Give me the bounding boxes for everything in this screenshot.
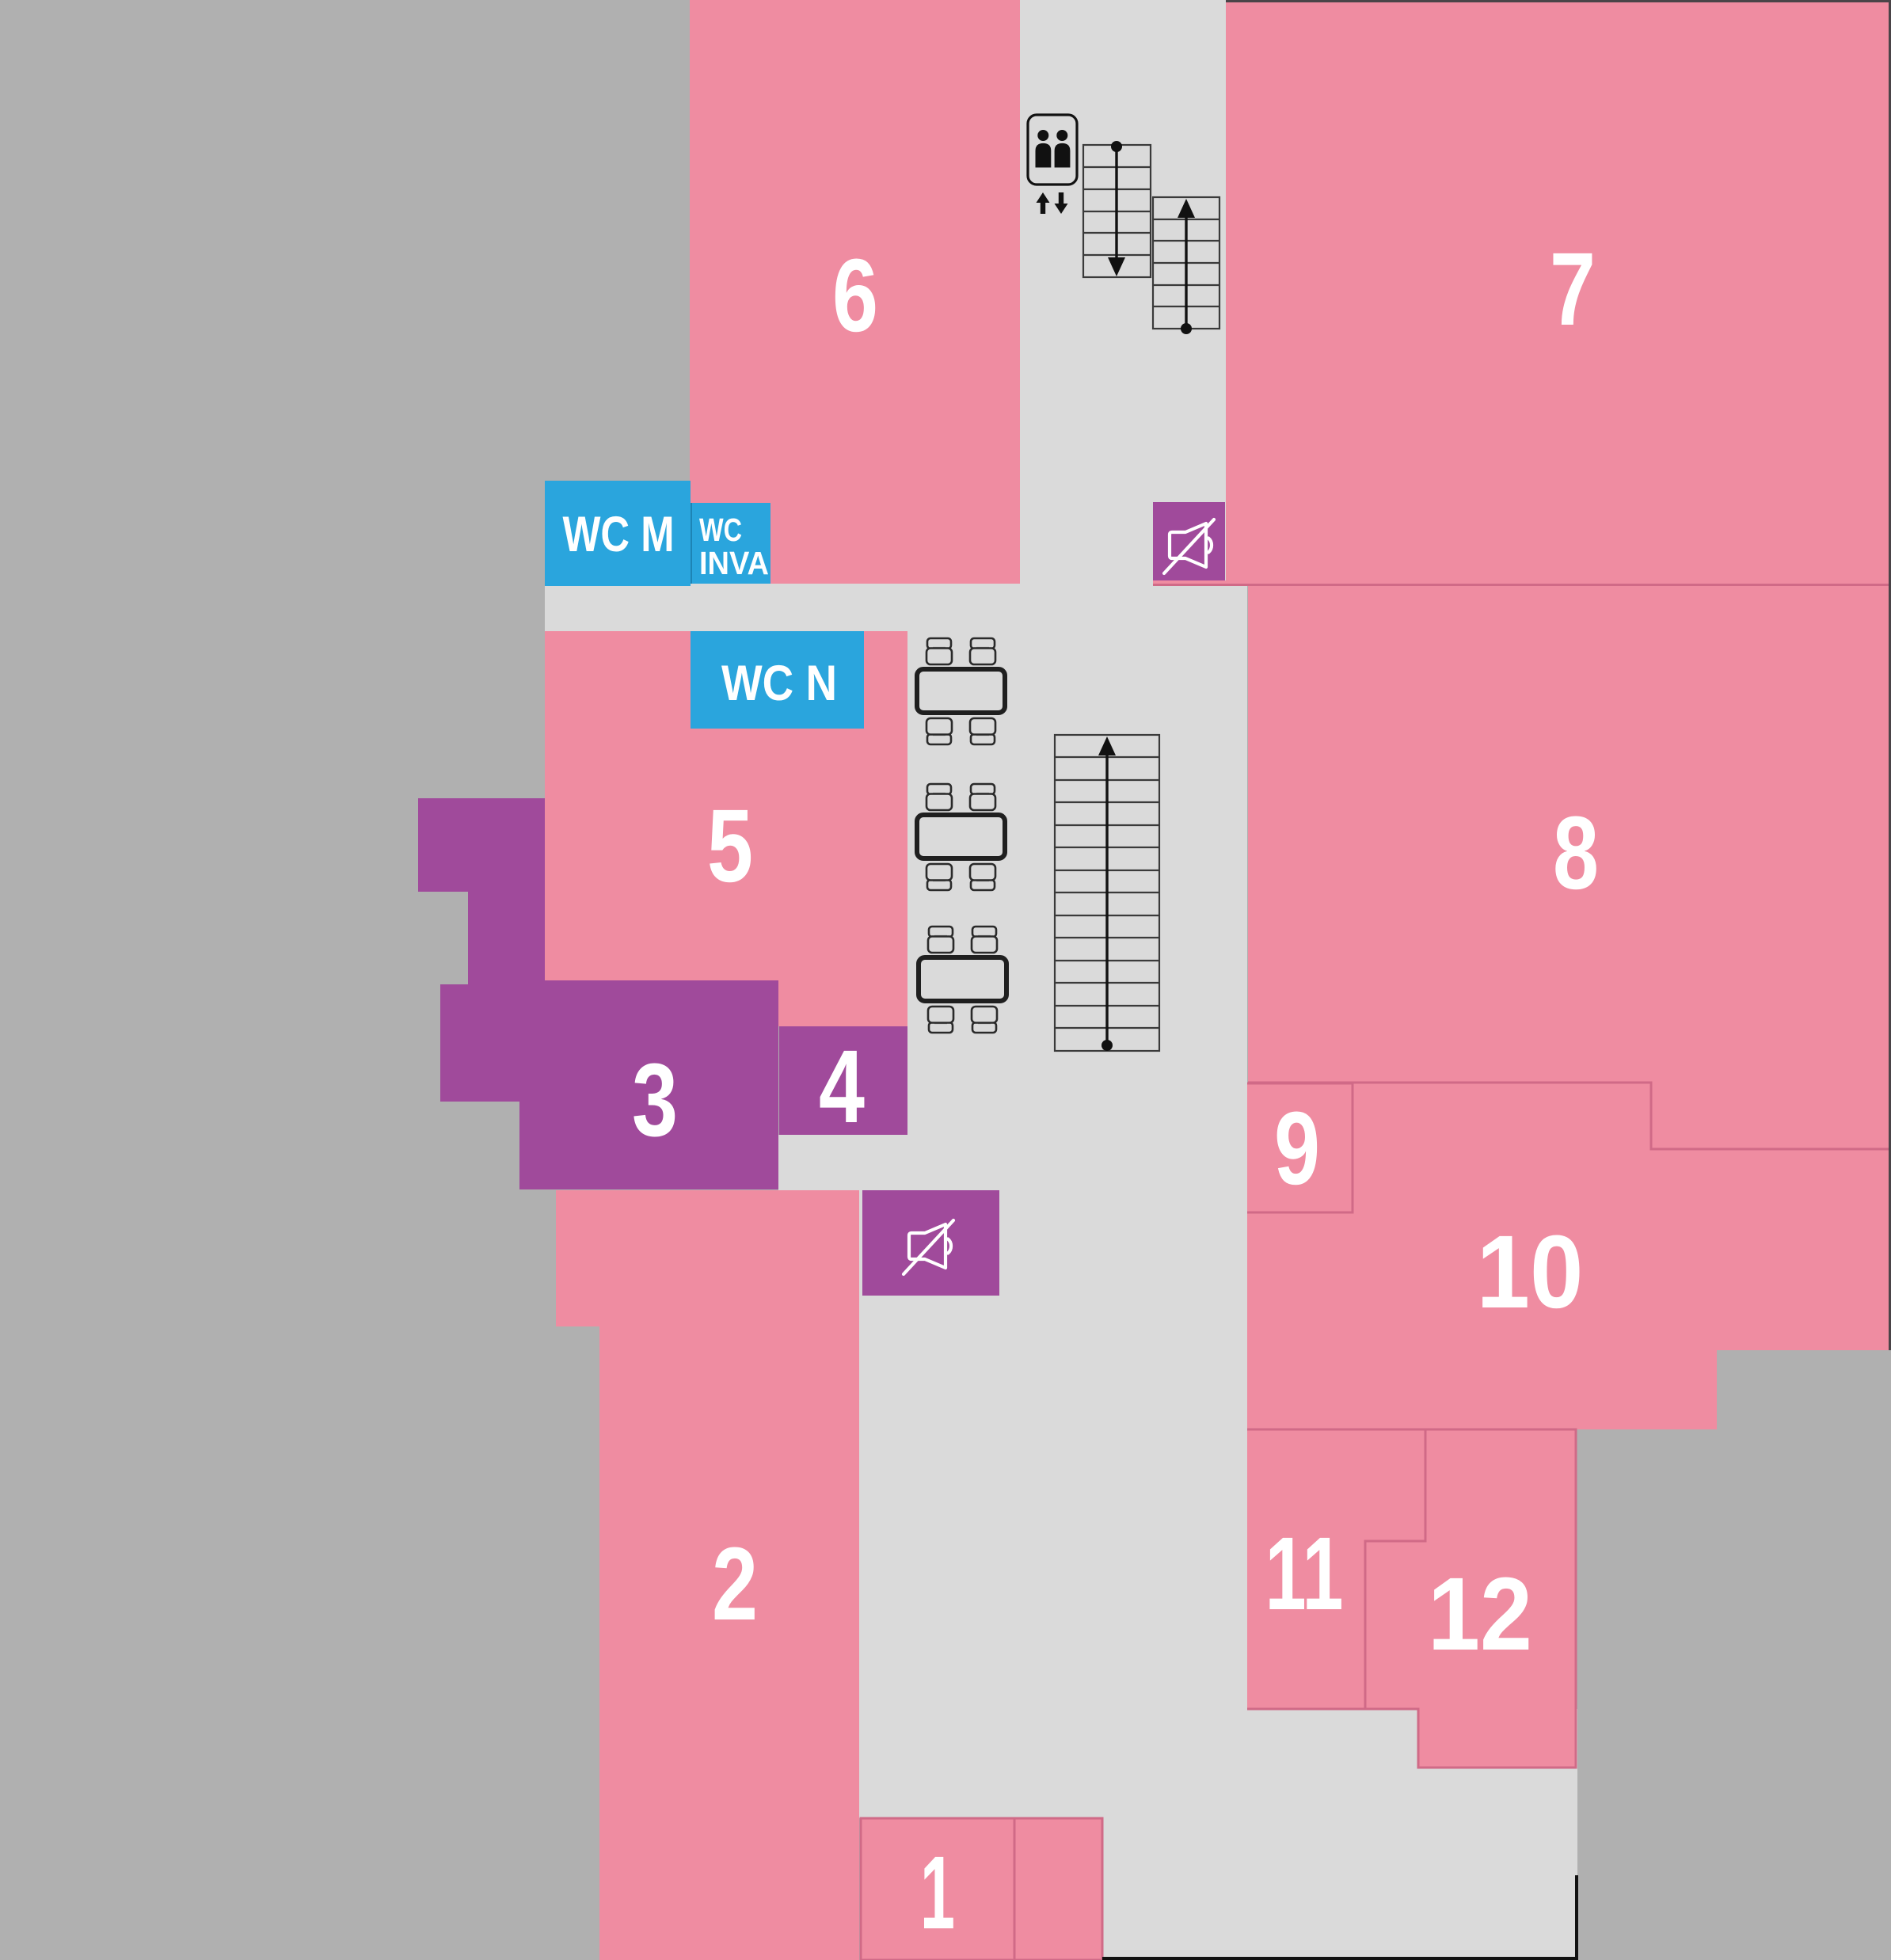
svg-text:7: 7 [1550, 230, 1596, 347]
svg-text:3: 3 [632, 1041, 678, 1158]
svg-text:11: 11 [1265, 1515, 1344, 1631]
svg-text:2: 2 [712, 1525, 758, 1642]
svg-text:12: 12 [1428, 1555, 1532, 1672]
svg-text:WC: WC [699, 512, 742, 548]
svg-text:6: 6 [832, 237, 878, 353]
svg-text:WC N: WC N [721, 656, 837, 711]
svg-text:1: 1 [920, 1834, 955, 1950]
svg-text:8: 8 [1553, 794, 1599, 911]
svg-text:4: 4 [819, 1028, 865, 1144]
svg-text:WC M: WC M [563, 507, 675, 562]
svg-text:INVA: INVA [699, 545, 769, 581]
svg-text:9: 9 [1274, 1090, 1320, 1206]
svg-text:10: 10 [1477, 1213, 1584, 1330]
svg-text:5: 5 [707, 787, 753, 904]
